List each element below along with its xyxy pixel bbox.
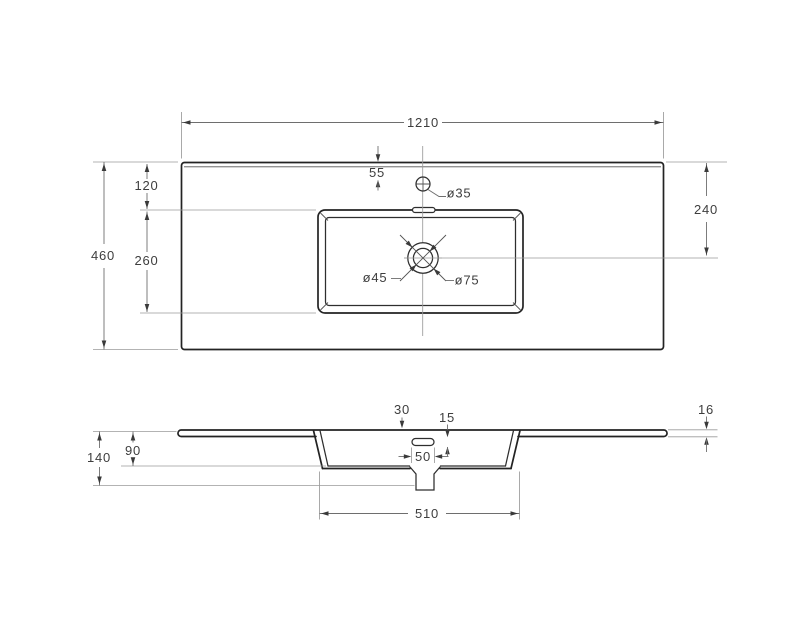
dim-edge-thickness: 16 (668, 402, 718, 452)
dim-label-overall-width: 1210 (407, 115, 439, 130)
arrowhead (655, 120, 663, 125)
section-view: 140 90 30 15 (87, 402, 718, 521)
arrowhead (145, 201, 150, 209)
dim-label-faucet-dia: ø35 (447, 186, 472, 201)
dim-label-drain-outer: ø75 (455, 273, 480, 288)
dim-label-basin-inner-depth: 90 (125, 443, 141, 458)
technical-drawing: ø35 ø45 ø75 1210 (0, 0, 800, 640)
dim-label-overall-depth: 460 (91, 248, 115, 263)
arrowhead (102, 164, 107, 172)
slab-profile (178, 430, 667, 437)
faucet-hole: ø35 (416, 177, 471, 201)
arrowhead (145, 165, 150, 173)
dim-faucet-offset: 55 (369, 146, 385, 191)
arrowhead (704, 165, 709, 173)
dim-label-total-height: 140 (87, 450, 111, 465)
dim-label-basin-cutout-depth: 260 (134, 253, 158, 268)
dim-label-faucet-offset: 55 (369, 165, 385, 180)
arrowhead (131, 457, 136, 465)
arrowhead (97, 433, 102, 441)
arrowhead (102, 341, 107, 349)
dim-overflow-width: 50 (399, 448, 449, 465)
arrowhead (511, 511, 519, 516)
arrowhead (445, 430, 450, 438)
arrowhead (376, 154, 381, 162)
overflow-slot (413, 208, 436, 213)
dim-basin-offsets: 120 260 (134, 164, 316, 313)
arrowhead (704, 248, 709, 256)
dim-drain-offset: 240 (666, 162, 727, 256)
dim-label-rim-width: 30 (394, 402, 410, 417)
dim-label-basin-width: 510 (415, 506, 439, 521)
arrowhead (404, 454, 412, 459)
arrowhead (145, 304, 150, 312)
arrowhead (321, 511, 329, 516)
arrowhead (704, 422, 709, 430)
dim-label-overflow-height: 15 (439, 410, 455, 425)
arrowhead (131, 433, 136, 441)
top-view: ø35 ø45 ø75 1210 (91, 112, 727, 350)
dim-rim-width: 30 (394, 402, 410, 428)
dim-label-drain-inner: ø45 (363, 270, 388, 285)
arrowhead (97, 477, 102, 485)
drain-hole: ø45 ø75 (363, 235, 480, 288)
drain-stub (410, 467, 440, 490)
arrowhead (183, 120, 191, 125)
dim-total-height: 140 (87, 432, 111, 486)
arrowhead (400, 421, 405, 429)
dim-label-edge-thickness: 16 (698, 402, 714, 417)
dim-label-basin-offset-top: 120 (134, 178, 158, 193)
dim-overflow-height: 15 (439, 410, 455, 457)
dim-basin-inner-depth: 90 (125, 432, 141, 467)
dim-label-drain-offset-top: 240 (694, 202, 718, 217)
dim-basin-width: 510 (320, 472, 520, 522)
dim-label-overflow-width: 50 (415, 449, 431, 464)
faucet-leader-line (428, 190, 446, 197)
overflow-slot-section (412, 439, 434, 446)
arrowhead (145, 213, 150, 221)
arrowhead (435, 454, 443, 459)
drawing-sheet: ø35 ø45 ø75 1210 (0, 0, 800, 640)
